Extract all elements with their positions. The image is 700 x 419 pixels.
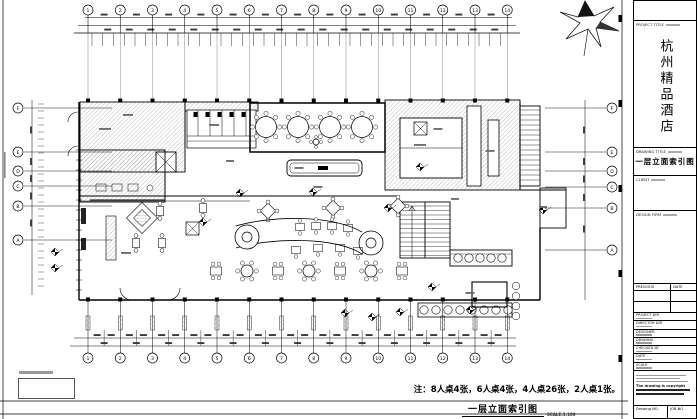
svg-text:8: 8	[312, 8, 315, 14]
svg-text:6: 6	[248, 356, 251, 362]
tb-field: DATE	[634, 354, 696, 362]
sheet-scale: SCALE:1:100	[547, 412, 576, 417]
tb-fields: PROJECT DIRDIRECTOR DIRDESIGNERDRAWINGCH…	[634, 313, 696, 371]
tb-top-cell	[634, 1, 696, 21]
tb-field: PROJECT DIR	[634, 313, 696, 321]
tb-field: CHECKED BY	[634, 346, 696, 354]
svg-text:8: 8	[312, 356, 315, 362]
tb-number-row: Drawing NO. JOB NO.	[634, 406, 696, 419]
svg-text:4: 4	[183, 8, 186, 14]
svg-text:10: 10	[375, 8, 381, 14]
tb-drawing-title-section: DRAWING TITLE 一层立面索引图	[634, 148, 696, 176]
tb-revision-table: PREVIOUS DATE	[634, 284, 696, 313]
svg-text:2: 2	[119, 356, 122, 362]
corner-box-label-bar	[19, 371, 53, 374]
tb-note-bar	[636, 381, 688, 383]
tb-copyright-notes: The drawing is copyright	[634, 371, 696, 406]
reference-box	[18, 378, 75, 399]
svg-text:6: 6	[248, 8, 251, 14]
svg-text:3: 3	[151, 8, 154, 14]
svg-text:7: 7	[280, 356, 283, 362]
tb-value-bar	[666, 24, 680, 26]
svg-text:F: F	[611, 106, 614, 112]
tb-client-label: CLIENT	[634, 176, 696, 182]
tb-note-bar	[636, 375, 686, 377]
svg-text:C: C	[16, 184, 19, 190]
svg-text:5: 5	[216, 356, 219, 362]
drawing-sheet: 12345678910111213141234567891011121314FE…	[0, 0, 700, 419]
svg-text:7: 7	[280, 8, 283, 14]
tb-field: SCALE	[634, 363, 696, 370]
tb-revision-header: PREVIOUS DATE	[634, 284, 696, 291]
svg-text:B: B	[610, 206, 613, 212]
svg-text:D: D	[610, 169, 614, 175]
svg-text:5: 5	[216, 8, 219, 14]
sheet-title: 一层立面索引图	[462, 402, 544, 417]
svg-text:E: E	[17, 150, 20, 156]
tb-revision-col-previous: PREVIOUS	[634, 284, 671, 290]
tb-client-section: CLIENT	[634, 176, 696, 211]
svg-text:14: 14	[504, 356, 510, 362]
tb-revision-row	[634, 291, 696, 302]
svg-text:10: 10	[375, 356, 381, 362]
tb-project-section: PROJECT TITLE 杭州精品酒店	[634, 21, 696, 148]
drawing-title: 一层立面索引图	[634, 156, 696, 167]
svg-text:11: 11	[408, 356, 414, 362]
tb-note-bar	[636, 378, 680, 380]
tb-design-firm-section: DESIGN FIRM	[634, 211, 696, 284]
tb-value-bar	[651, 179, 665, 181]
svg-text:9: 9	[345, 356, 348, 362]
svg-text:4: 4	[183, 356, 186, 362]
svg-text:13: 13	[472, 356, 478, 362]
tb-drawing-title-label: DRAWING TITLE	[634, 148, 696, 154]
svg-text:14: 14	[504, 8, 510, 14]
project-title: 杭州精品酒店	[634, 27, 696, 147]
tb-copyright-line: The drawing is copyright	[636, 384, 694, 388]
svg-text:2: 2	[119, 8, 122, 14]
svg-text:13: 13	[472, 8, 478, 14]
svg-text:3: 3	[151, 356, 154, 362]
tb-job-no-label: JOB NO.	[668, 406, 696, 419]
svg-text:12: 12	[440, 8, 446, 14]
tb-design-firm-label: DESIGN FIRM	[634, 211, 696, 217]
tb-value-bar	[663, 214, 677, 216]
tb-note-bar-dark	[636, 389, 690, 391]
floor-plan-drawing: 12345678910111213141234567891011121314FE…	[0, 0, 628, 419]
tb-field: DRAWING	[634, 338, 696, 346]
tb-value-bar	[668, 151, 682, 153]
svg-text:12: 12	[440, 356, 446, 362]
tb-revision-col-date: DATE	[671, 284, 696, 290]
svg-text:1: 1	[87, 356, 90, 362]
svg-text:C: C	[610, 185, 613, 191]
tb-drawing-no-label: Drawing NO.	[634, 406, 668, 419]
svg-text:F: F	[17, 106, 20, 112]
svg-text:9: 9	[345, 8, 348, 14]
svg-text:E: E	[611, 150, 614, 156]
svg-text:11: 11	[408, 8, 414, 14]
svg-text:D: D	[16, 169, 20, 175]
tb-note-bar-dark	[636, 393, 684, 395]
sheet-title-row: 一层立面索引图 SCALE:1:100	[462, 402, 622, 417]
svg-text:B: B	[16, 204, 19, 210]
tb-revision-row	[634, 302, 696, 312]
title-block: PROJECT TITLE 杭州精品酒店 DRAWING TITLE 一层立面索…	[633, 0, 697, 419]
svg-text:1: 1	[87, 8, 90, 14]
tb-field: DESIGNER	[634, 330, 696, 338]
table-count-note: 注：8人桌4张，6人桌4张，4人桌26张，2人桌1张。	[414, 383, 620, 395]
tb-field: DIRECTOR DIR	[634, 321, 696, 329]
